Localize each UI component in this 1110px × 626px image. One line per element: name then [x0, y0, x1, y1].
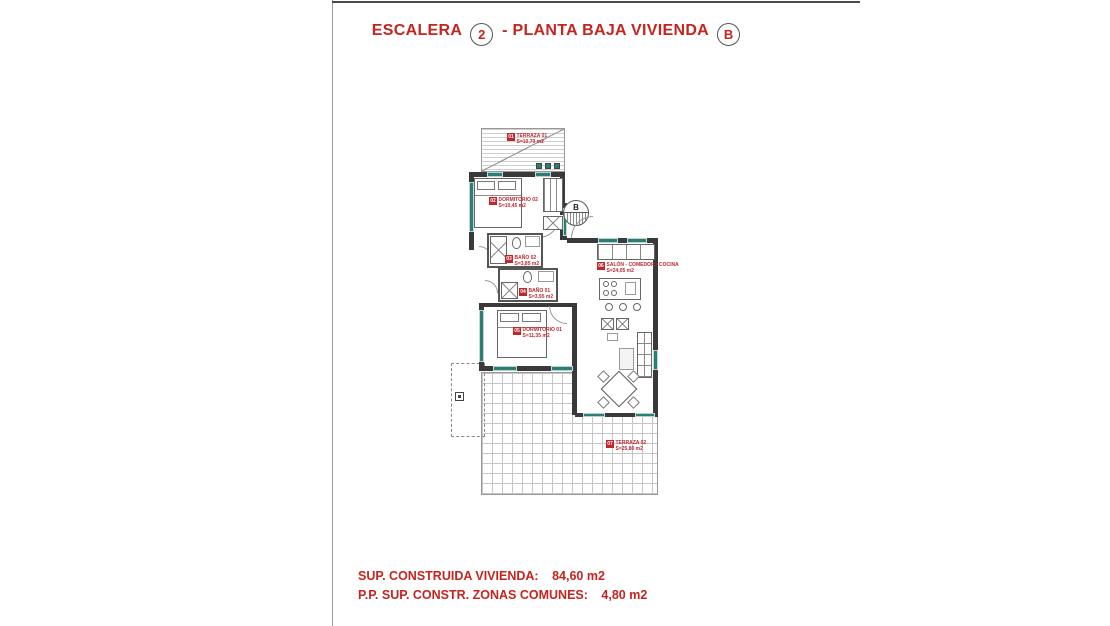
- window-segment: [493, 366, 517, 371]
- window-segment: [598, 238, 618, 243]
- window-segment: [487, 172, 503, 177]
- page-edge-left: [332, 0, 333, 626]
- burner: [611, 281, 617, 287]
- bed-pillow: [498, 181, 516, 190]
- sofa: [637, 332, 652, 378]
- dimension-tick: [536, 163, 542, 169]
- window-segment: [627, 238, 647, 243]
- washbasin: [525, 236, 540, 247]
- room-area: S=10,45 m2: [499, 203, 538, 209]
- wall: [653, 370, 658, 417]
- page-title: ESCALERA 2 - PLANTA BAJA VIVIENDA B: [332, 22, 784, 46]
- room-label-dormitorio-2: 02 DORMITORIO 02 S=10,45 m2: [489, 197, 538, 209]
- window-segment: [583, 413, 605, 417]
- window-segment: [479, 310, 484, 362]
- page-edge-top: [332, 1, 860, 3]
- side-table: [607, 333, 618, 341]
- shower: [501, 282, 518, 299]
- summary-line-1: SUP. CONSTRUIDA VIVIENDA: 84,60 m2: [358, 567, 647, 586]
- armchair: [616, 318, 629, 330]
- room-number-badge: 06: [597, 262, 605, 270]
- pillar: [455, 392, 464, 401]
- floor-plan-drawing: B: [435, 120, 685, 510]
- title-part2: - PLANTA BAJA VIVIENDA: [502, 22, 708, 39]
- room-number-badge: 04: [519, 288, 527, 296]
- room-number-badge: 02: [489, 197, 497, 205]
- bed-pillow: [477, 181, 495, 190]
- wall: [567, 238, 595, 243]
- dimension-tick: [554, 163, 560, 169]
- door-arc: [485, 280, 498, 293]
- stair-number-badge: 2: [470, 23, 493, 46]
- surface-summary: SUP. CONSTRUIDA VIVIENDA: 84,60 m2 P.P. …: [358, 567, 647, 605]
- room-label-terraza-2: 07 TERRAZA 02 S=25,80 m2: [606, 440, 646, 452]
- room-number-badge: 03: [505, 255, 513, 263]
- summary-line-2-label: P.P. SUP. CONSTR. ZONAS COMUNES:: [358, 588, 588, 602]
- bed-fold-line: [475, 195, 521, 196]
- room-area: S=24,05 m2: [607, 268, 679, 274]
- sink: [625, 282, 636, 295]
- window-segment: [653, 350, 658, 370]
- burner: [611, 290, 617, 296]
- room-label-salon: 06 SALÓN - COMEDOR - COCINA S=24,05 m2: [597, 262, 679, 274]
- bed-pillow: [500, 313, 519, 322]
- toilet: [523, 271, 532, 283]
- room-area: S=3,95 m2: [529, 294, 554, 300]
- window-segment: [635, 413, 655, 417]
- toilet: [512, 237, 521, 249]
- armchair: [601, 318, 614, 330]
- room-area: S=11,35 m2: [523, 333, 562, 339]
- wall: [572, 303, 577, 415]
- room-label-dormitorio-1: 05 DORMITORIO 01 S=11,35 m2: [513, 327, 562, 339]
- stool: [633, 303, 641, 311]
- summary-line-1-value: 84,60 m2: [552, 569, 605, 583]
- room-label-terraza-1: 01 TERRAZA 01 S=10,70 m2: [507, 133, 547, 145]
- room-number-badge: 05: [513, 327, 521, 335]
- summary-line-1-label: SUP. CONSTRUIDA VIVIENDA:: [358, 569, 539, 583]
- summary-line-2: P.P. SUP. CONSTR. ZONAS COMUNES: 4,80 m2: [358, 586, 647, 605]
- stool: [619, 303, 627, 311]
- stool: [605, 303, 613, 311]
- dimension-tick: [545, 163, 551, 169]
- washbasin: [538, 271, 554, 282]
- room-label-bano-1: 04 BAÑO 01 S=3,95 m2: [519, 288, 553, 300]
- door-arc: [549, 306, 567, 324]
- cabinet: [543, 216, 563, 230]
- room-area: S=10,70 m2: [517, 139, 548, 145]
- burner: [603, 281, 609, 287]
- summary-line-2-value: 4,80 m2: [601, 588, 647, 602]
- room-area: S=3,85 m2: [515, 261, 540, 267]
- burner: [603, 290, 609, 296]
- dwelling-letter-badge: B: [717, 23, 740, 46]
- room-area: S=25,80 m2: [616, 446, 647, 452]
- kitchen-counter: [597, 244, 655, 260]
- floor-plan-sheet: ESCALERA 2 - PLANTA BAJA VIVIENDA B: [0, 0, 1110, 626]
- room-label-bano-2: 03 BAÑO 02 S=3,85 m2: [505, 255, 539, 267]
- room-number-badge: 01: [507, 133, 515, 141]
- window-segment: [535, 172, 551, 177]
- bed-pillow: [522, 313, 541, 322]
- rug: [619, 348, 634, 370]
- title-part1: ESCALERA: [372, 22, 462, 39]
- room-number-badge: 07: [606, 440, 614, 448]
- wardrobe: [543, 178, 563, 212]
- window-segment: [551, 366, 573, 371]
